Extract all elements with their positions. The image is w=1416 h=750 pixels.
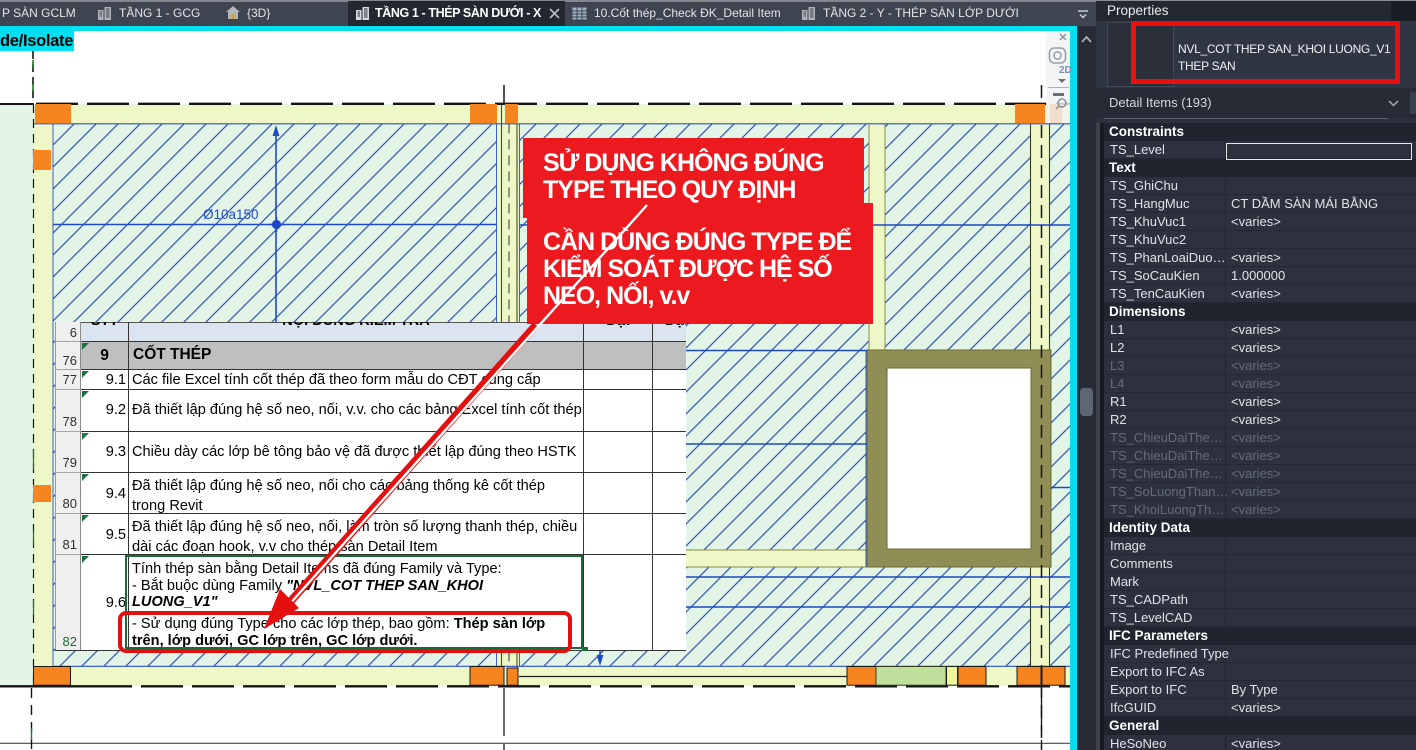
svg-text:Ø10a150: Ø10a150 bbox=[203, 207, 259, 222]
svg-text:2D: 2D bbox=[1059, 65, 1072, 76]
